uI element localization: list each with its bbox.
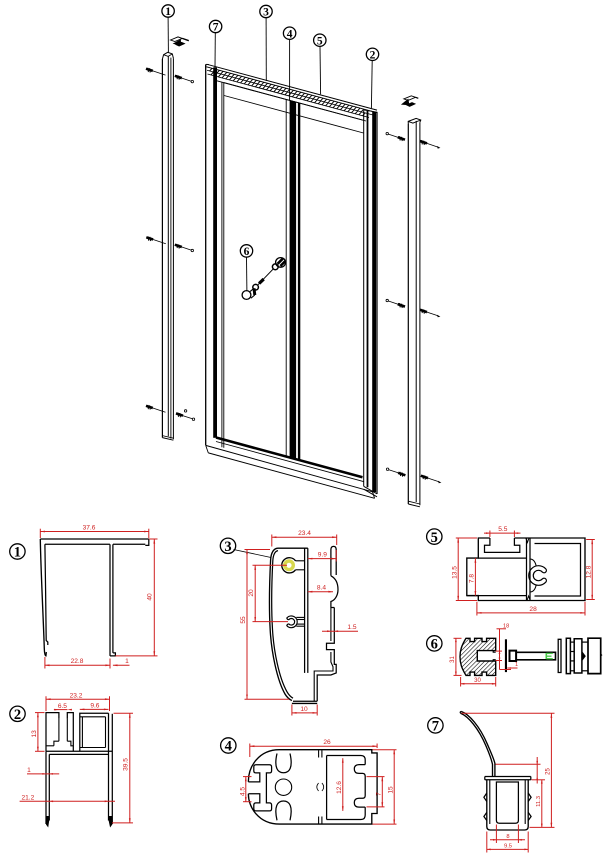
svg-text:21.2: 21.2 <box>21 794 34 801</box>
svg-text:5: 5 <box>431 530 438 546</box>
svg-text:26: 26 <box>323 739 331 746</box>
svg-text:3: 3 <box>224 539 231 555</box>
svg-text:7: 7 <box>376 792 383 796</box>
svg-text:55: 55 <box>240 616 247 624</box>
svg-text:8.4: 8.4 <box>317 585 326 592</box>
svg-text:3: 3 <box>263 7 269 19</box>
svg-text:13: 13 <box>31 730 38 738</box>
svg-text:39.5: 39.5 <box>123 758 130 771</box>
svg-text:9.6: 9.6 <box>90 702 99 709</box>
svg-text:12.6: 12.6 <box>336 781 343 794</box>
svg-text:5: 5 <box>317 35 323 47</box>
svg-text:23.4: 23.4 <box>298 530 311 537</box>
svg-text:1: 1 <box>125 658 129 665</box>
svg-text:7: 7 <box>432 719 439 735</box>
svg-text:40: 40 <box>146 593 153 601</box>
svg-text:7.8: 7.8 <box>469 574 476 583</box>
svg-text:18: 18 <box>503 624 509 630</box>
svg-text:1: 1 <box>165 6 171 18</box>
svg-text:1: 1 <box>27 767 31 774</box>
svg-text:5.5: 5.5 <box>498 526 507 533</box>
svg-text:7: 7 <box>213 22 219 34</box>
svg-text:22.8: 22.8 <box>71 658 84 665</box>
svg-text:15: 15 <box>388 786 395 794</box>
svg-text:31: 31 <box>450 656 456 663</box>
svg-text:4.5: 4.5 <box>240 787 247 796</box>
svg-text:6.5: 6.5 <box>58 703 67 710</box>
svg-text:1: 1 <box>14 545 21 561</box>
svg-text:23.2: 23.2 <box>70 692 83 699</box>
svg-text:30: 30 <box>474 678 481 684</box>
svg-text:4: 4 <box>287 28 293 40</box>
svg-text:1: 1 <box>515 662 518 668</box>
svg-text:9.5: 9.5 <box>504 844 512 850</box>
svg-text:6: 6 <box>244 246 250 258</box>
svg-text:8: 8 <box>506 834 509 840</box>
svg-text:28: 28 <box>529 606 537 613</box>
svg-text:37.6: 37.6 <box>83 525 96 532</box>
svg-text:12.8: 12.8 <box>585 565 592 578</box>
svg-text:4: 4 <box>225 739 232 755</box>
svg-text:2: 2 <box>14 707 21 723</box>
svg-text:11.3: 11.3 <box>536 796 542 807</box>
svg-text:6: 6 <box>431 637 438 653</box>
svg-text:1.5: 1.5 <box>347 624 356 631</box>
svg-text:2: 2 <box>370 49 376 61</box>
svg-text:20: 20 <box>248 589 255 597</box>
svg-text:9.9: 9.9 <box>318 551 327 558</box>
svg-text:10: 10 <box>300 706 308 713</box>
svg-text:25: 25 <box>546 768 552 775</box>
svg-text:13.5: 13.5 <box>451 566 458 579</box>
